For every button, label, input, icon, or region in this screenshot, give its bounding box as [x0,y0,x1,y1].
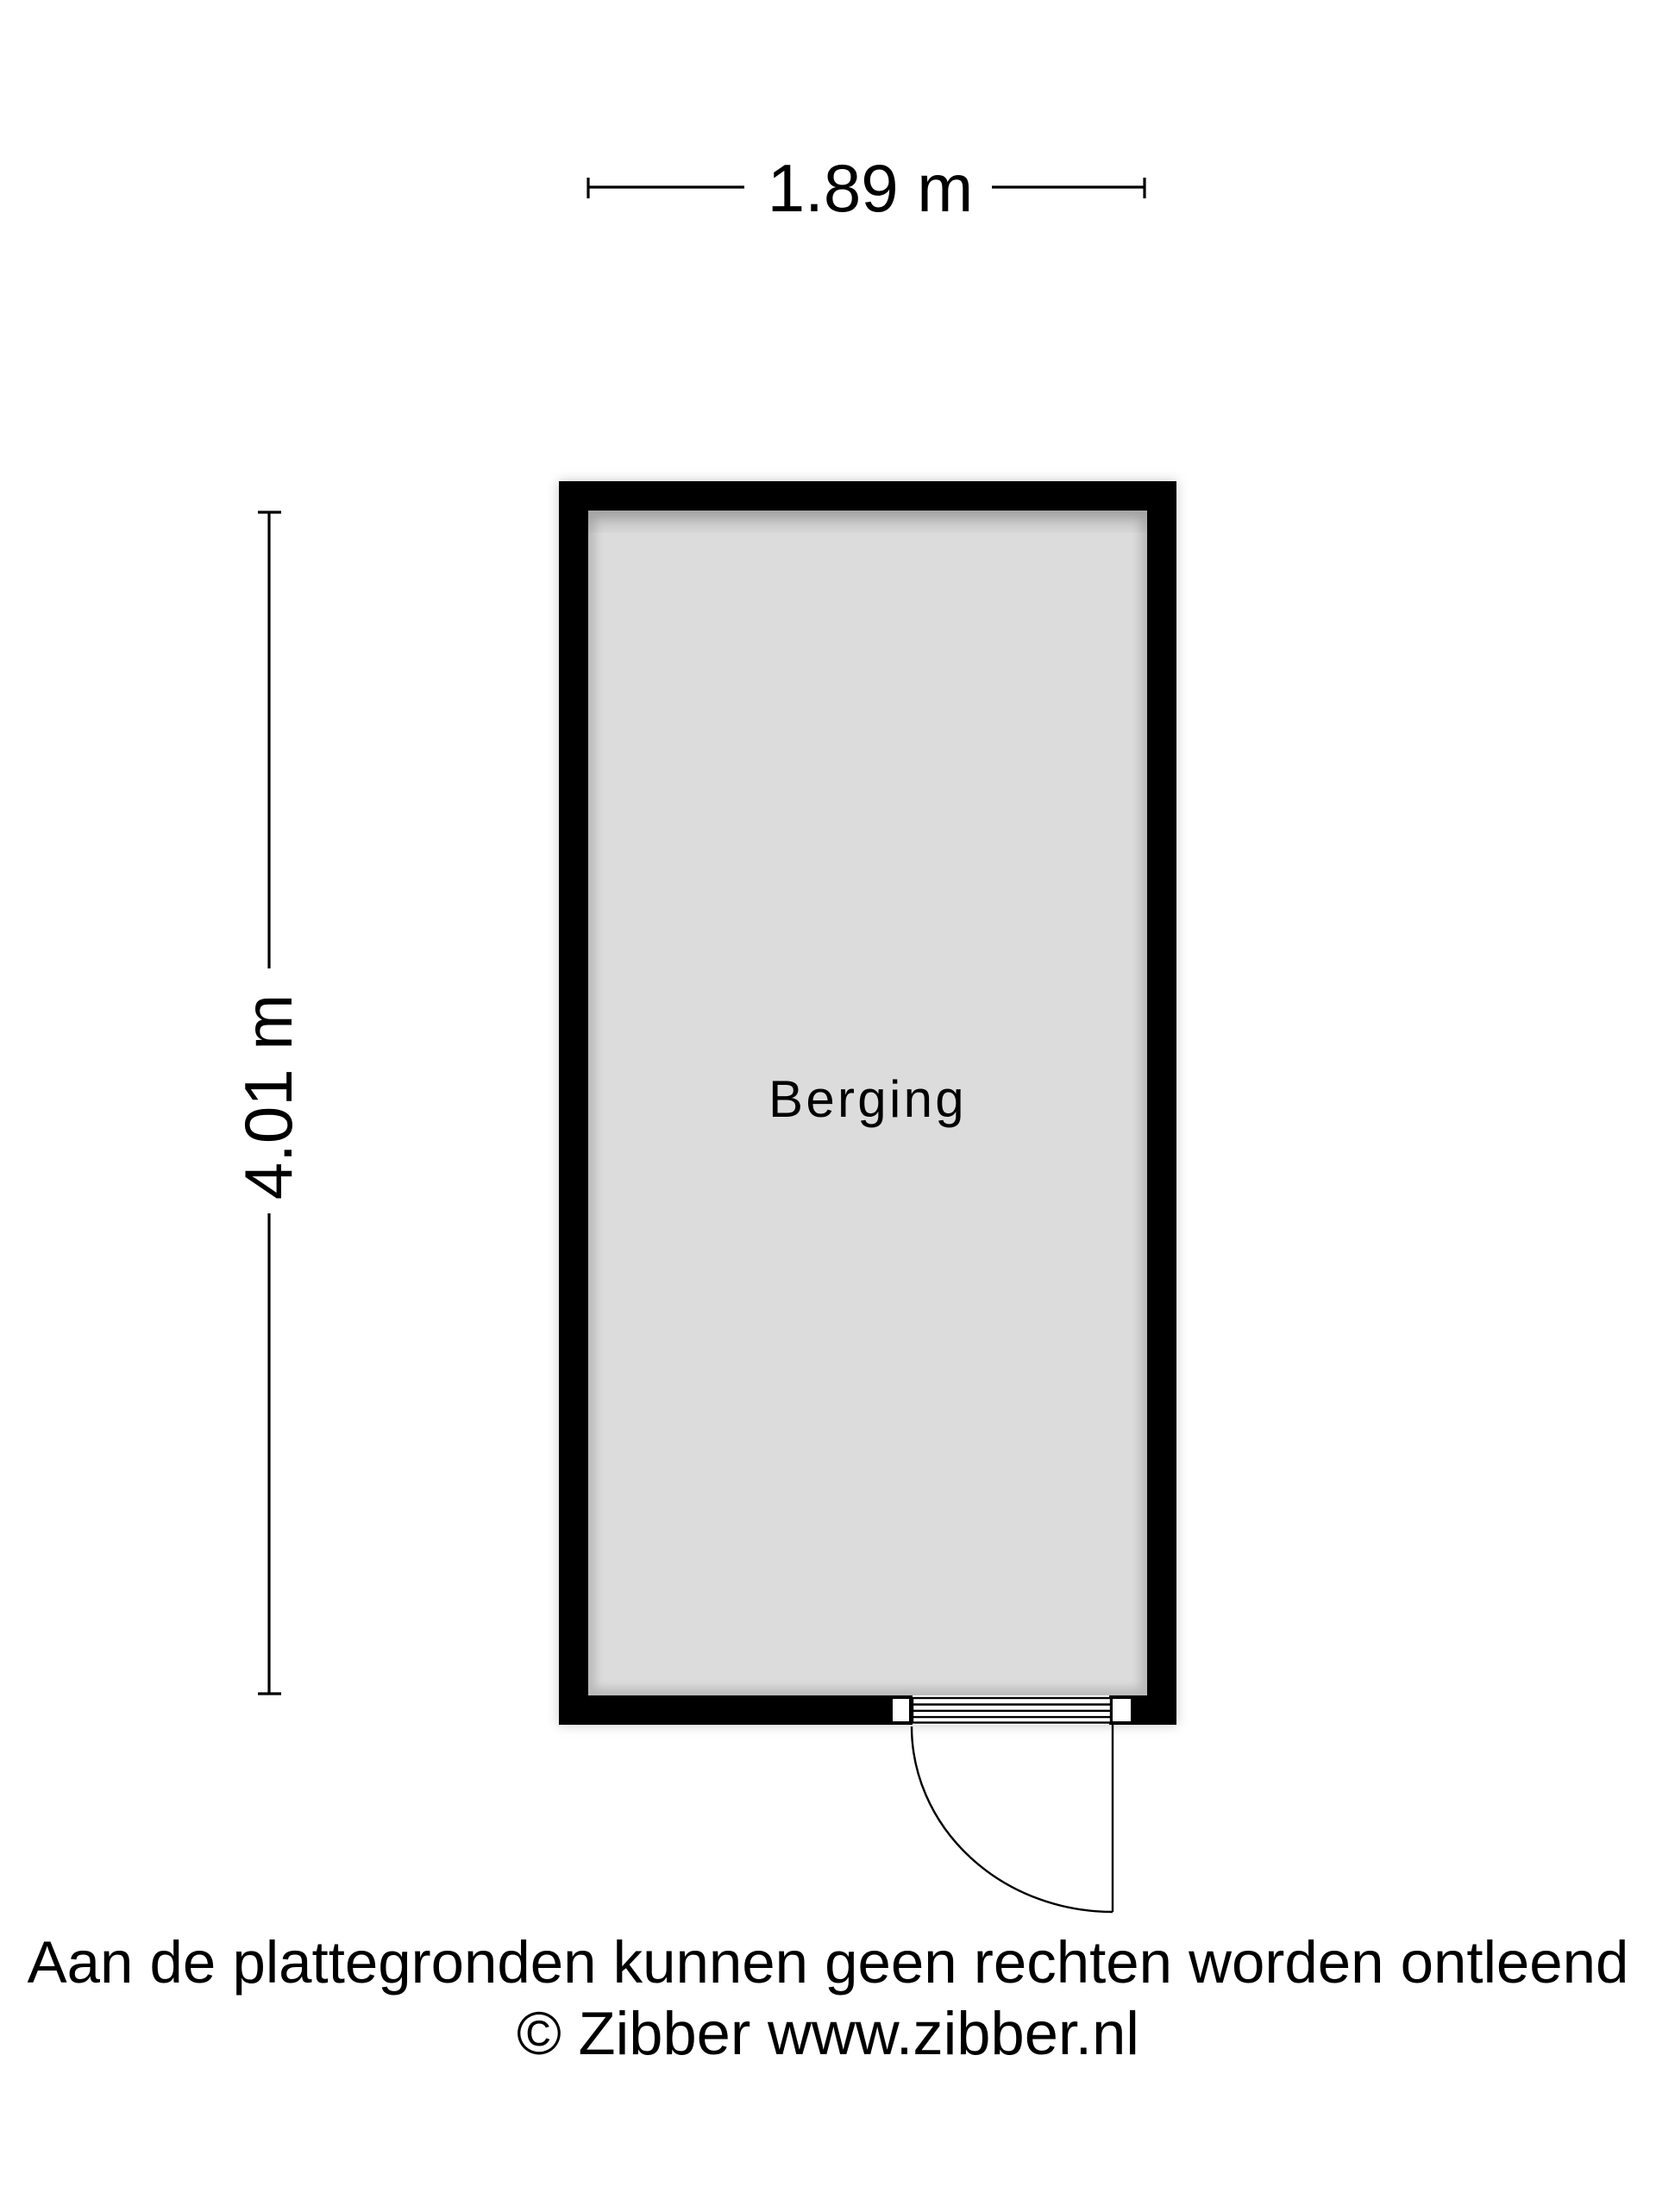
svg-text:1.89 m: 1.89 m [768,150,973,226]
svg-text:4.01 m: 4.01 m [230,994,306,1200]
svg-text:Aan de plattegronden kunnen ge: Aan de plattegronden kunnen geen rechten… [28,1929,1629,1996]
svg-text:© Zibber www.zibber.nl: © Zibber www.zibber.nl [517,1999,1139,2067]
svg-text:Berging: Berging [768,1070,967,1128]
